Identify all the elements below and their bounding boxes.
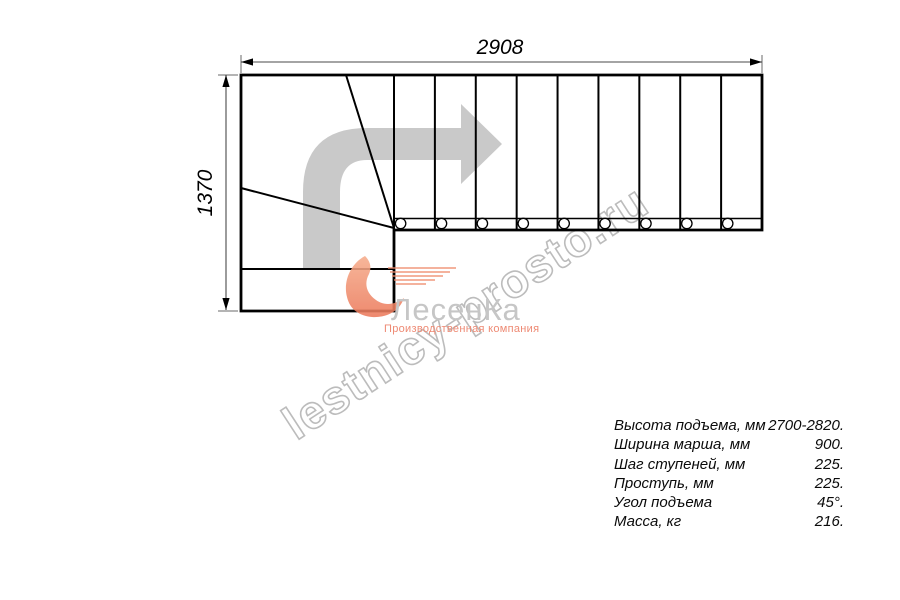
spec-table: Высота подъема, мм 2700-2820. Ширина мар…	[614, 416, 844, 532]
fastener-circle	[436, 218, 446, 228]
spec-value: 225.	[815, 455, 844, 474]
spec-row: Угол подъема 45°.	[614, 493, 844, 512]
width-dimension-label: 2908	[476, 36, 524, 59]
spec-label: Шаг ступеней, мм	[614, 455, 745, 474]
spec-row: Высота подъема, мм 2700-2820.	[614, 416, 844, 435]
fastener-circle	[641, 218, 651, 228]
spec-label: Проступь, мм	[614, 474, 714, 493]
spec-value: 216.	[815, 512, 844, 531]
fastener-circle	[682, 218, 692, 228]
fastener-circle	[600, 218, 610, 228]
fastener-circle	[518, 218, 528, 228]
fastener-circle	[395, 218, 405, 228]
spec-label: Высота подъема, мм	[614, 416, 766, 435]
tread-fasteners	[395, 218, 733, 228]
spec-row: Масса, кг 216.	[614, 512, 844, 531]
company-logo: ЛесенКа Производственная компания	[336, 250, 581, 348]
fastener-circle	[477, 218, 487, 228]
logo-subtitle: Производственная компания	[384, 323, 539, 335]
spec-value: 45°.	[817, 493, 844, 512]
spec-label: Угол подъема	[614, 493, 712, 512]
fastener-circle	[559, 218, 569, 228]
spec-label: Масса, кг	[614, 512, 681, 531]
speed-lines-icon	[388, 268, 456, 284]
height-dimension-label: 1370	[194, 169, 217, 216]
dimension-width: 2908	[241, 36, 762, 73]
dimension-height: 1370	[194, 75, 238, 311]
spec-value: 225.	[815, 474, 844, 493]
spec-value: 900.	[815, 435, 844, 454]
spec-label: Ширина марша, мм	[614, 435, 750, 454]
spec-row: Шаг ступеней, мм 225.	[614, 455, 844, 474]
spec-row: Ширина марша, мм 900.	[614, 435, 844, 454]
direction-arrow	[303, 104, 502, 269]
spec-value: 2700-2820.	[768, 416, 844, 435]
spec-row: Проступь, мм 225.	[614, 474, 844, 493]
fastener-circle	[723, 218, 733, 228]
